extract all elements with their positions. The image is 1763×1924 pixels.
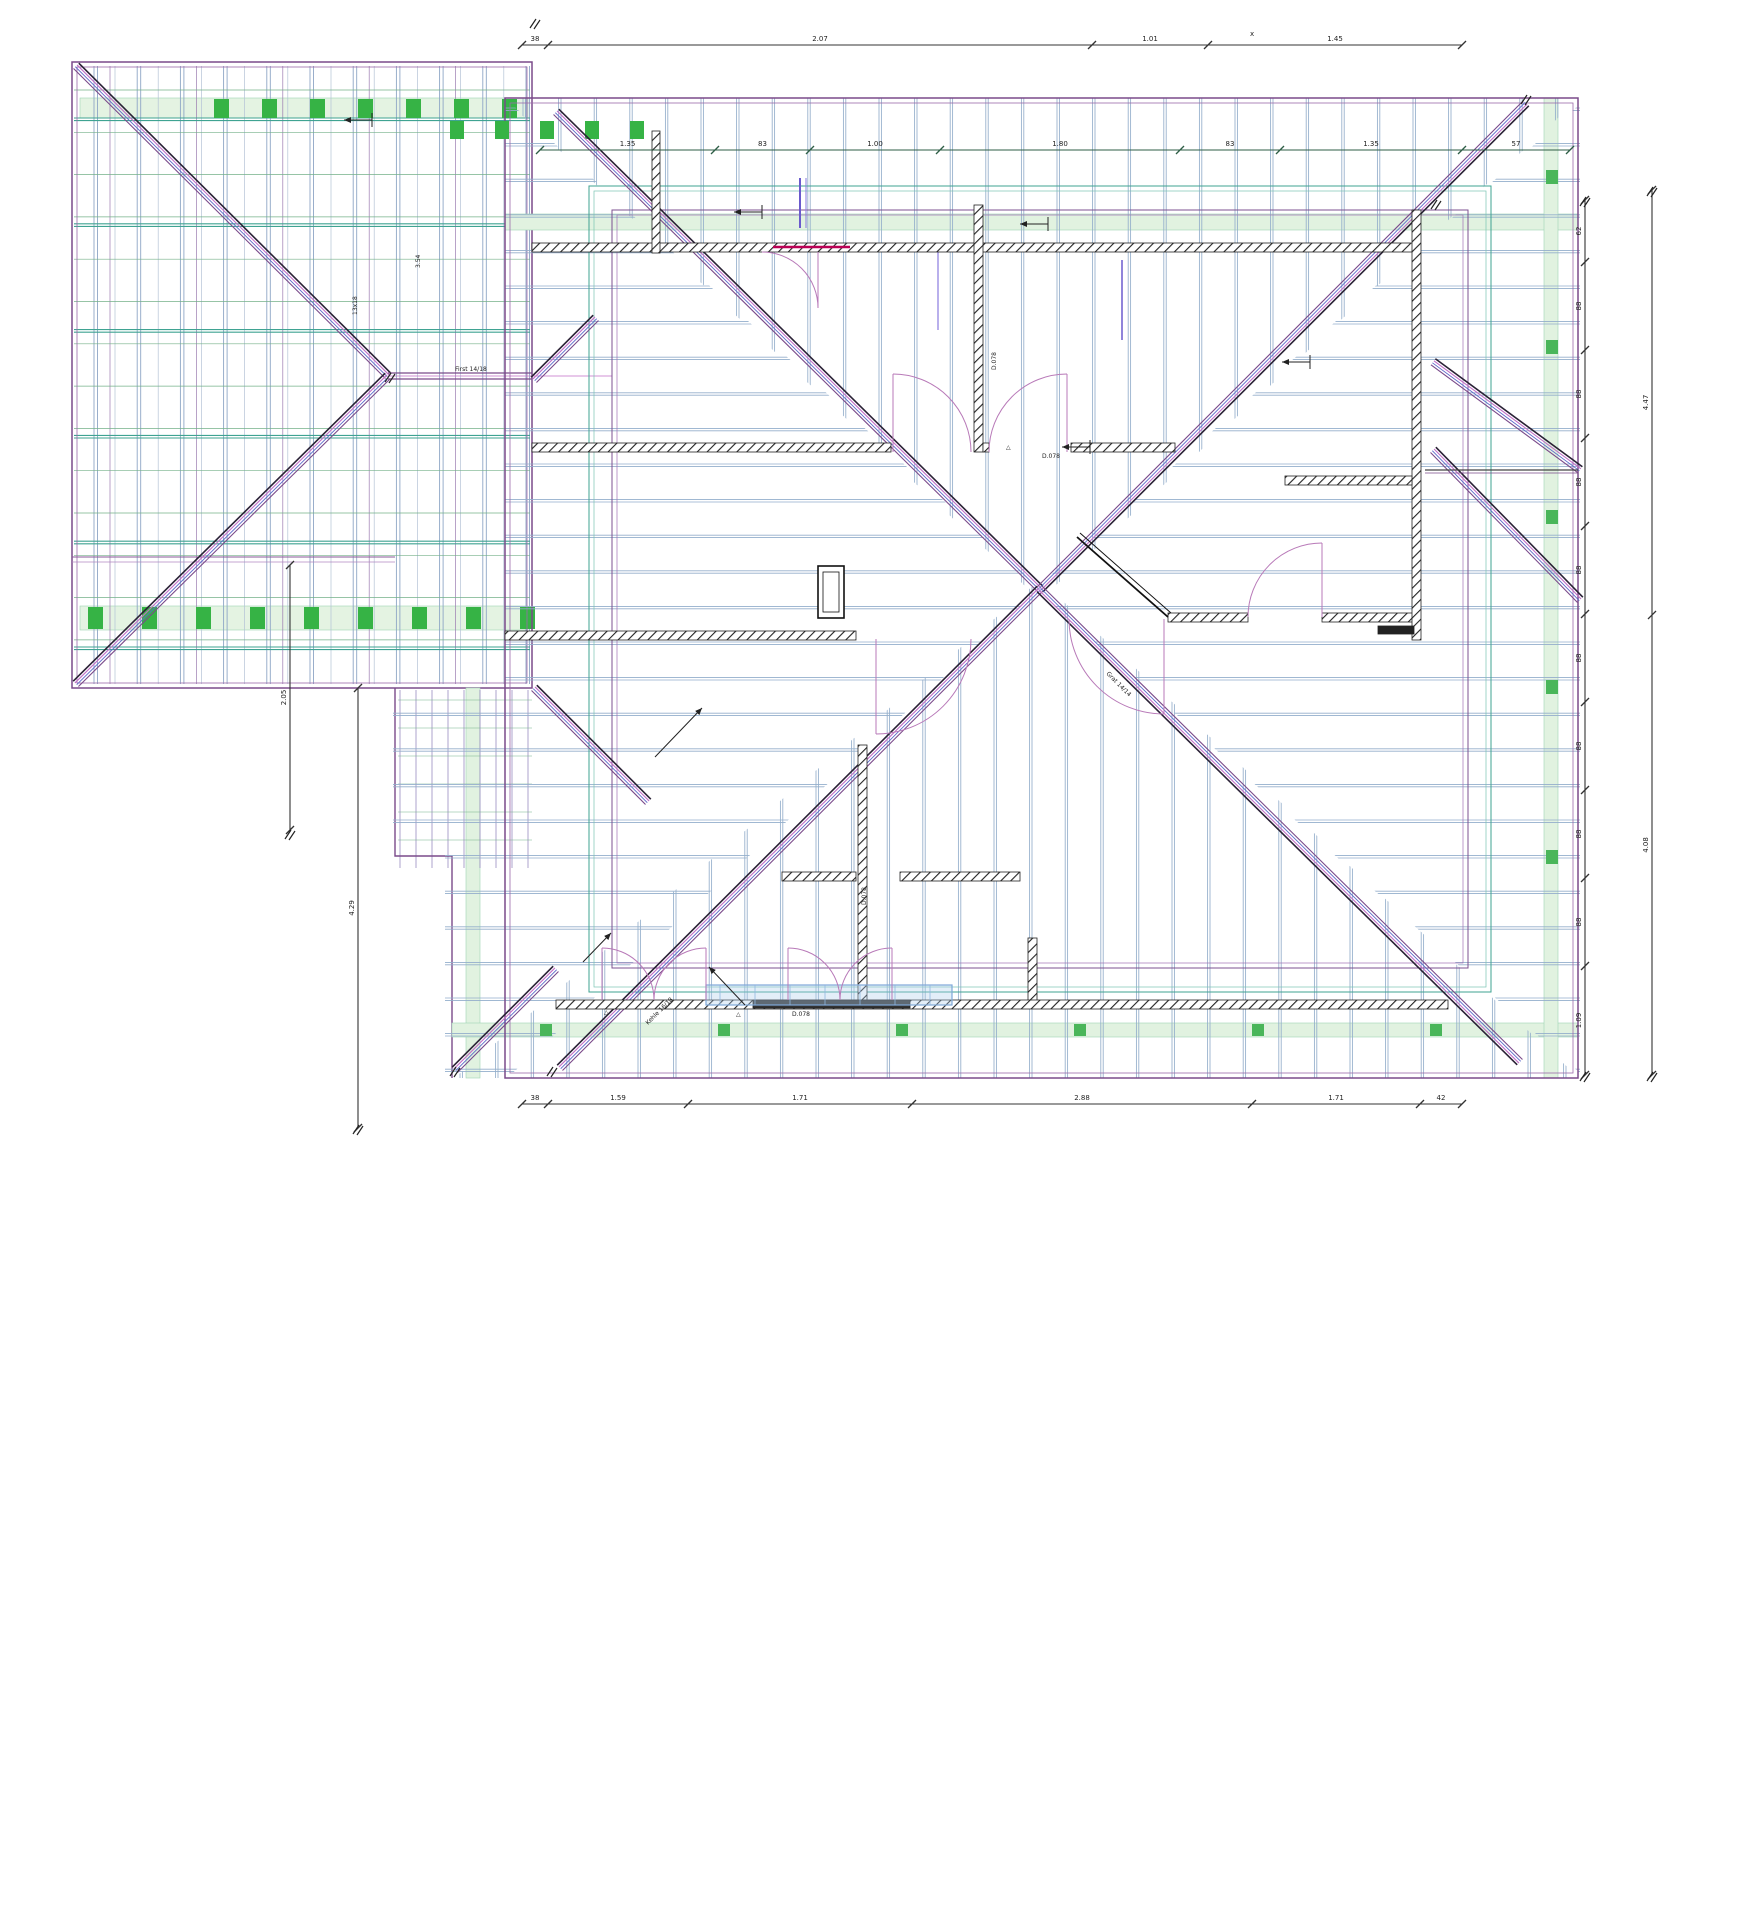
right-eave-band bbox=[1544, 98, 1558, 1078]
wall-bottom-vertical bbox=[858, 745, 867, 1003]
svg-text:88: 88 bbox=[1575, 742, 1583, 751]
ridge-label: First 14/18 bbox=[455, 366, 487, 373]
wing-width-label: 3.54 bbox=[415, 254, 422, 268]
cad-roof-framing-plan: 382.071.011.45 1.35831.001.80831.3557 38… bbox=[0, 0, 1763, 1920]
svg-text:2.88: 2.88 bbox=[1074, 1094, 1090, 1102]
wall-bottom-stub bbox=[1028, 938, 1037, 1003]
wall-east-lintel bbox=[1378, 626, 1414, 634]
wing-rafters-secondary bbox=[115, 66, 504, 684]
svg-text:1.09: 1.09 bbox=[1575, 1013, 1583, 1029]
svg-text:57: 57 bbox=[1512, 140, 1521, 148]
svg-text:88: 88 bbox=[1575, 390, 1583, 399]
bay-hip-upper bbox=[1431, 359, 1582, 473]
beam-label-b: D.078 bbox=[861, 887, 868, 905]
wall-lower-left bbox=[505, 631, 856, 640]
svg-text:38: 38 bbox=[531, 1094, 540, 1102]
wing-hip-bottom bbox=[73, 373, 390, 686]
door-east-room bbox=[1248, 543, 1322, 617]
wall-east-b bbox=[1322, 613, 1420, 622]
wall-bottom bbox=[556, 1000, 1448, 1009]
door-center-left bbox=[876, 639, 971, 734]
purlin-ring-green-inner bbox=[594, 191, 1486, 987]
svg-text:1.35: 1.35 bbox=[620, 140, 636, 148]
bottom-eave-band bbox=[452, 1023, 1578, 1037]
valley-upper bbox=[531, 315, 598, 382]
marker-triangle-1: △ bbox=[736, 1011, 741, 1018]
wall-lower-mid-a bbox=[782, 872, 856, 881]
wall-center-vertical bbox=[974, 205, 983, 452]
wall-right-room bbox=[1285, 476, 1412, 485]
svg-text:1.71: 1.71 bbox=[1328, 1094, 1344, 1102]
dim-line-left-main: 4.29 bbox=[348, 684, 362, 1132]
dim-chain-top-outer: 382.071.011.45 bbox=[518, 35, 1466, 49]
hip-northwest bbox=[554, 109, 1043, 591]
chimney-box bbox=[818, 566, 844, 618]
main-roof-left-step-edge bbox=[395, 688, 452, 1078]
wing-rafters-primary bbox=[94, 66, 530, 684]
svg-text:83: 83 bbox=[758, 140, 767, 148]
wall-east-a bbox=[1168, 613, 1248, 622]
dim-chain-right-outer: 4.474.08 bbox=[1642, 186, 1656, 1079]
steel-beam-overlay bbox=[706, 985, 952, 1005]
marker-triangle-3: △ bbox=[1006, 444, 1011, 451]
top-band-blocking bbox=[450, 121, 644, 139]
drawing-canvas: 382.071.011.45 1.35831.001.80831.3557 38… bbox=[0, 0, 1763, 1920]
svg-text:42: 42 bbox=[1437, 1094, 1446, 1102]
wall-mid-jamb bbox=[983, 443, 989, 452]
svg-text:4.47: 4.47 bbox=[1642, 395, 1650, 411]
wing-purlin-verticals bbox=[110, 66, 456, 684]
beam-label-a: D.078 bbox=[792, 1011, 810, 1018]
svg-text:1.59: 1.59 bbox=[610, 1094, 626, 1102]
door-mid-right bbox=[989, 374, 1067, 452]
wing-ridge bbox=[388, 373, 612, 379]
wall-diagonal-a bbox=[1077, 537, 1168, 617]
corner-mark: x bbox=[1250, 30, 1254, 38]
svg-text:88: 88 bbox=[1575, 918, 1583, 927]
svg-text:88: 88 bbox=[1575, 830, 1583, 839]
svg-text:38: 38 bbox=[531, 35, 540, 43]
door-top-wall bbox=[762, 252, 818, 308]
svg-text:1.80: 1.80 bbox=[1052, 140, 1068, 148]
wall-top-stub bbox=[652, 131, 660, 253]
svg-text:62: 62 bbox=[1575, 227, 1583, 236]
indigo-accents bbox=[800, 178, 1122, 340]
door-arcs bbox=[602, 252, 1322, 1000]
beam-label-c: D.078 bbox=[991, 352, 998, 370]
marker-triangle-2: △ bbox=[604, 1009, 609, 1016]
dim-chain-right-inner: 6288888888888888881.09 bbox=[1575, 196, 1589, 1079]
svg-text:88: 88 bbox=[1575, 302, 1583, 311]
dim-line-left-lower: 2.05 bbox=[280, 561, 294, 834]
purlin-ring-green bbox=[589, 186, 1491, 992]
svg-text:1.45: 1.45 bbox=[1327, 35, 1343, 43]
junction-structure bbox=[395, 688, 532, 1078]
svg-text:88: 88 bbox=[1575, 566, 1583, 575]
svg-text:1.71: 1.71 bbox=[792, 1094, 808, 1102]
svg-text:88: 88 bbox=[1575, 654, 1583, 663]
wall-mid-left bbox=[532, 443, 891, 452]
dim-chain-top-inner: 1.35831.001.80831.3557 bbox=[536, 140, 1574, 154]
svg-text:1.00: 1.00 bbox=[867, 140, 883, 148]
svg-text:4.08: 4.08 bbox=[1642, 837, 1650, 853]
svg-text:2.05: 2.05 bbox=[280, 690, 288, 706]
wing-eave-outline-inner bbox=[77, 67, 527, 683]
svg-text:1.35: 1.35 bbox=[1363, 140, 1379, 148]
wing-battens-heavy bbox=[74, 118, 530, 650]
wall-lower-mid-b bbox=[900, 872, 1020, 881]
beam-label-d: D.078 bbox=[1042, 453, 1060, 460]
door-mid-left bbox=[893, 374, 971, 452]
junction-verticals bbox=[400, 690, 528, 868]
rafters-east-plane bbox=[1035, 108, 1580, 1072]
dim-chain-bottom: 381.591.712.881.7142 bbox=[518, 1094, 1466, 1108]
svg-text:4.29: 4.29 bbox=[348, 900, 356, 916]
svg-text:83: 83 bbox=[1226, 140, 1235, 148]
hip-southeast bbox=[1037, 587, 1522, 1065]
wall-right-vertical bbox=[1412, 210, 1421, 640]
purlin-ring-purple-inner bbox=[617, 215, 1463, 963]
hip-northeast bbox=[1038, 101, 1529, 592]
left-wing-roof bbox=[72, 62, 612, 688]
rafters-west-plane bbox=[393, 108, 1045, 1072]
svg-text:2.07: 2.07 bbox=[812, 35, 828, 43]
rafters-north-plane bbox=[523, 98, 1558, 600]
svg-text:88: 88 bbox=[1575, 478, 1583, 487]
svg-text:1.01: 1.01 bbox=[1142, 35, 1158, 43]
wing-beam-label: 13x18 bbox=[352, 296, 359, 315]
